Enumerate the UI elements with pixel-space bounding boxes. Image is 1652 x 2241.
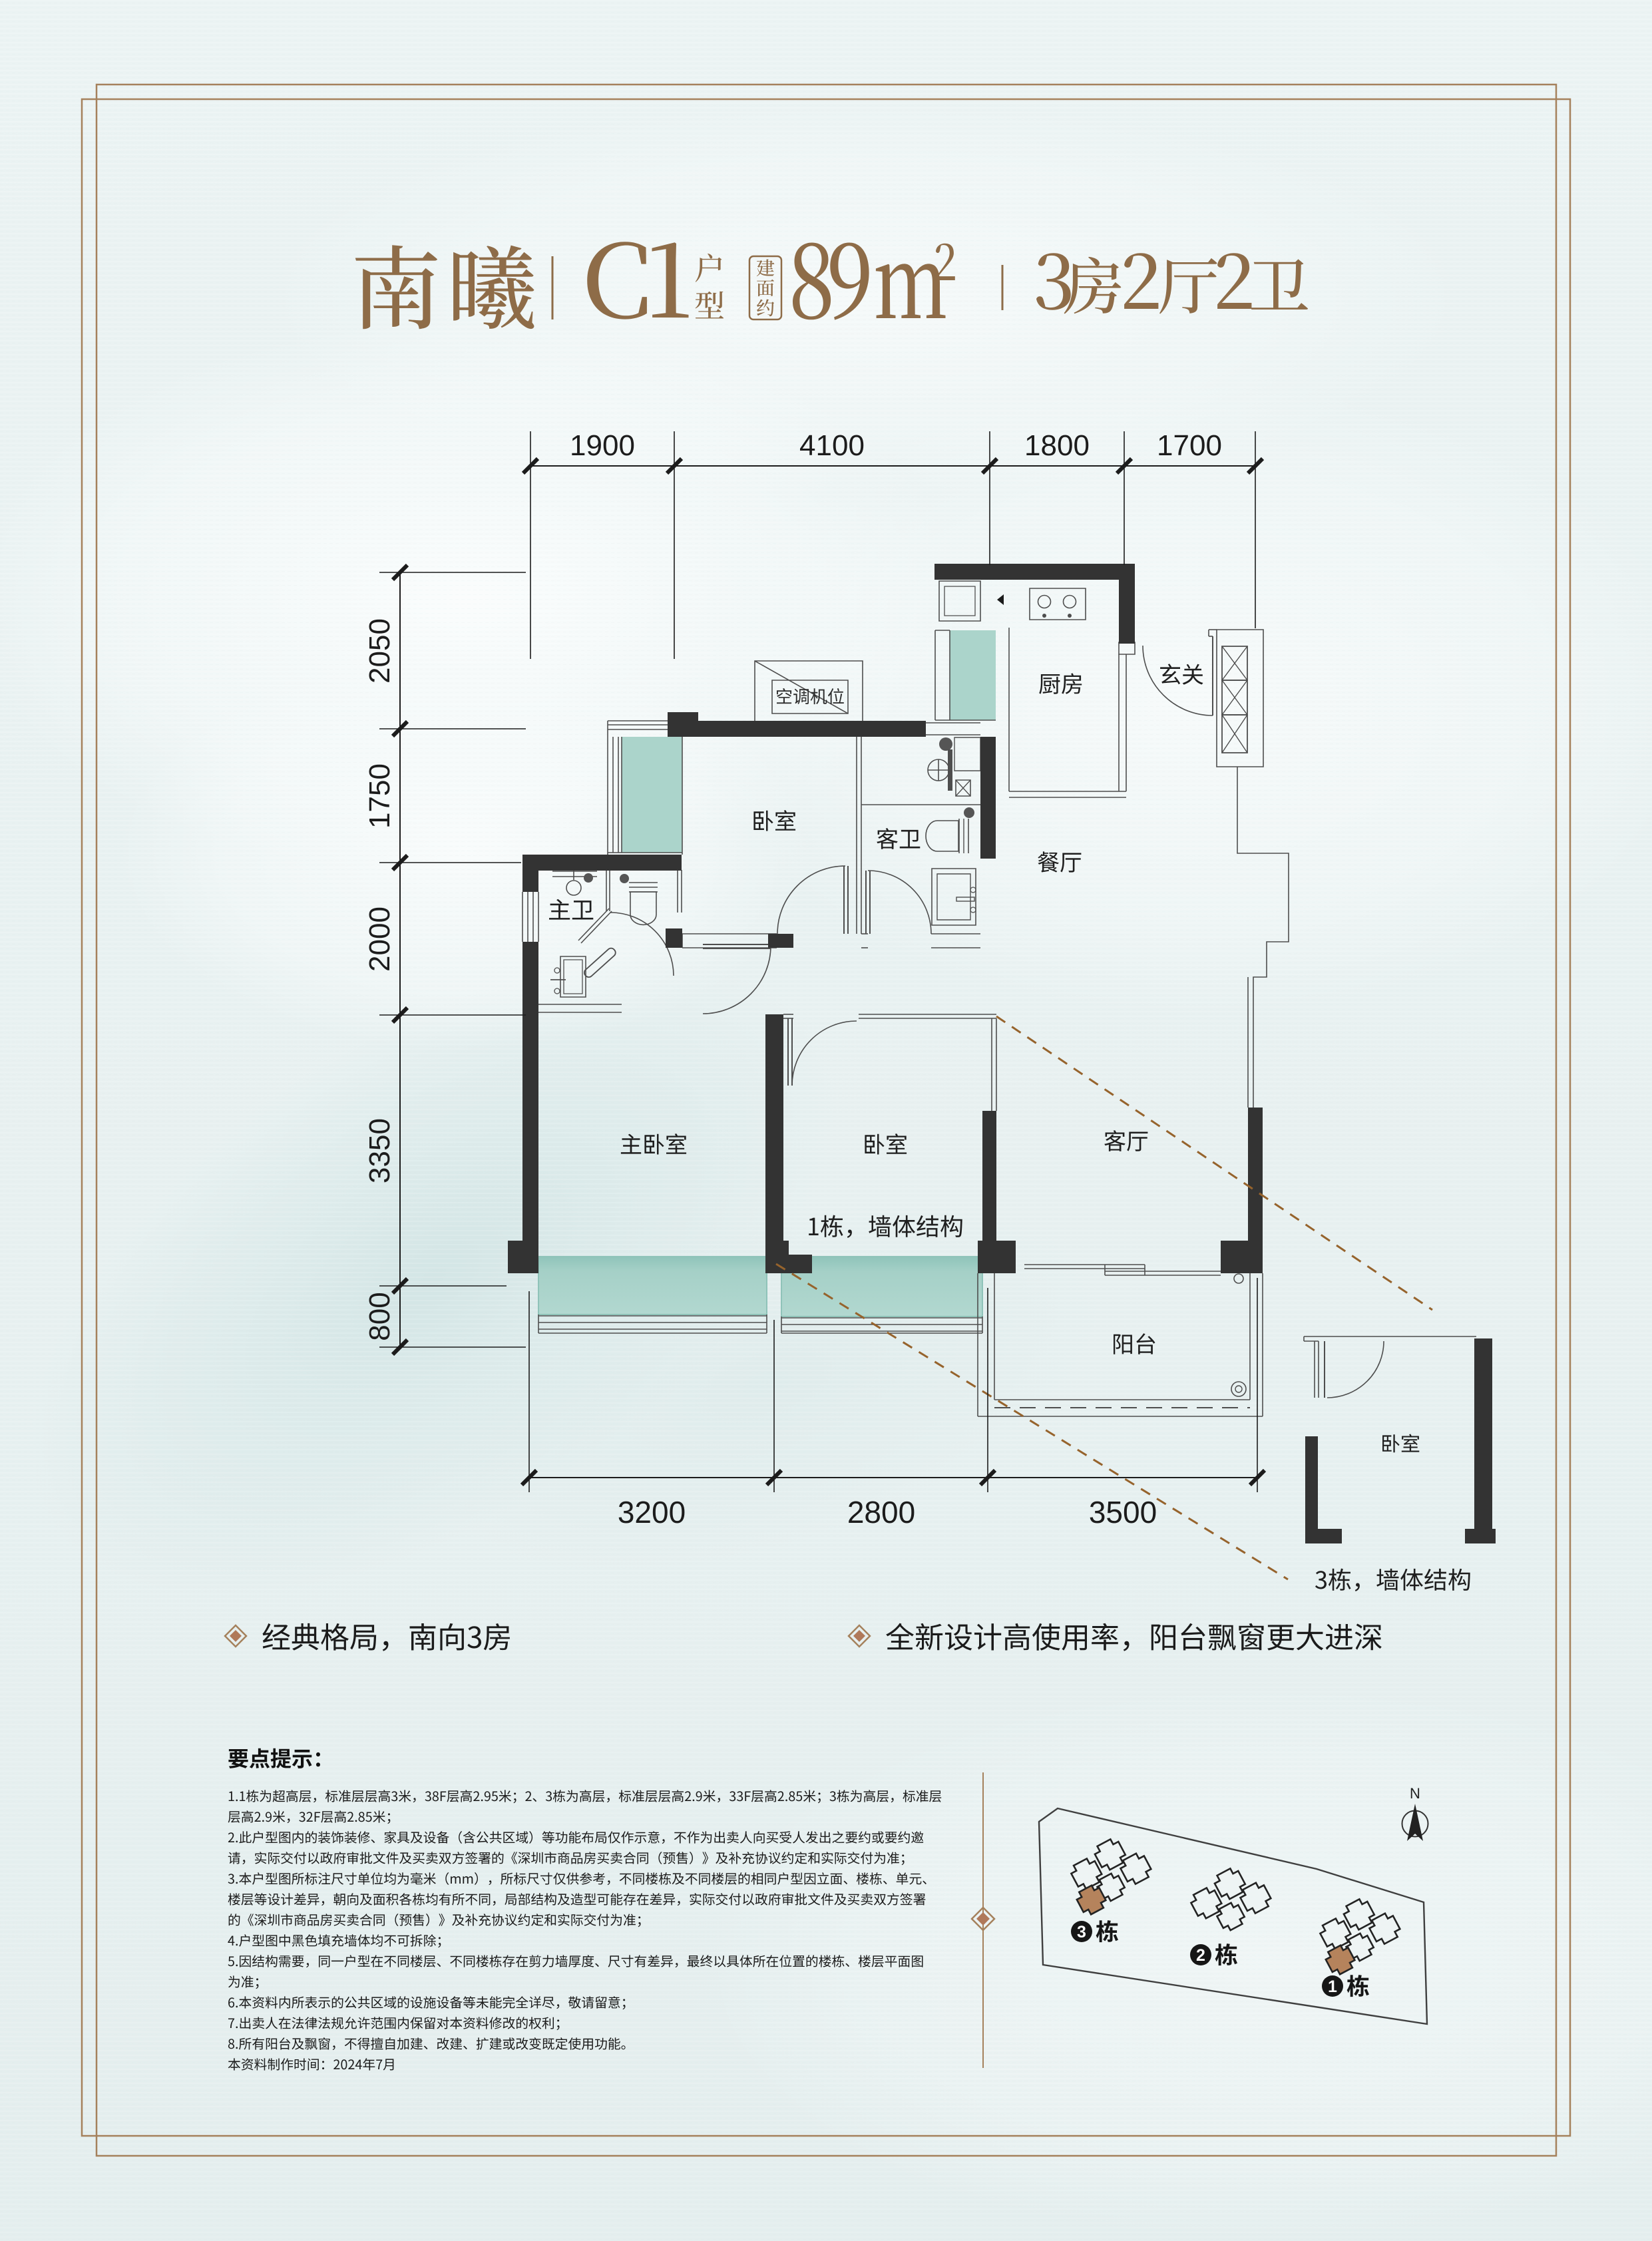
svg-text:3: 3 bbox=[1077, 1923, 1086, 1941]
svg-text:3200: 3200 bbox=[618, 1495, 686, 1529]
svg-text:3500: 3500 bbox=[1089, 1495, 1157, 1529]
svg-text:3350: 3350 bbox=[363, 1118, 396, 1183]
svg-text:N: N bbox=[1410, 1785, 1420, 1802]
svg-text:2000: 2000 bbox=[363, 907, 396, 972]
svg-text:2800: 2800 bbox=[847, 1495, 915, 1529]
svg-text:2050: 2050 bbox=[363, 618, 396, 684]
svg-text:1750: 1750 bbox=[363, 763, 396, 829]
svg-text:1800: 1800 bbox=[1024, 429, 1090, 462]
svg-text:1: 1 bbox=[1328, 1977, 1337, 1996]
svg-text:800: 800 bbox=[363, 1292, 396, 1340]
svg-text:1700: 1700 bbox=[1157, 429, 1222, 462]
svg-text:2: 2 bbox=[1196, 1946, 1205, 1965]
svg-text:1900: 1900 bbox=[570, 429, 635, 462]
svg-text:4100: 4100 bbox=[799, 429, 865, 462]
